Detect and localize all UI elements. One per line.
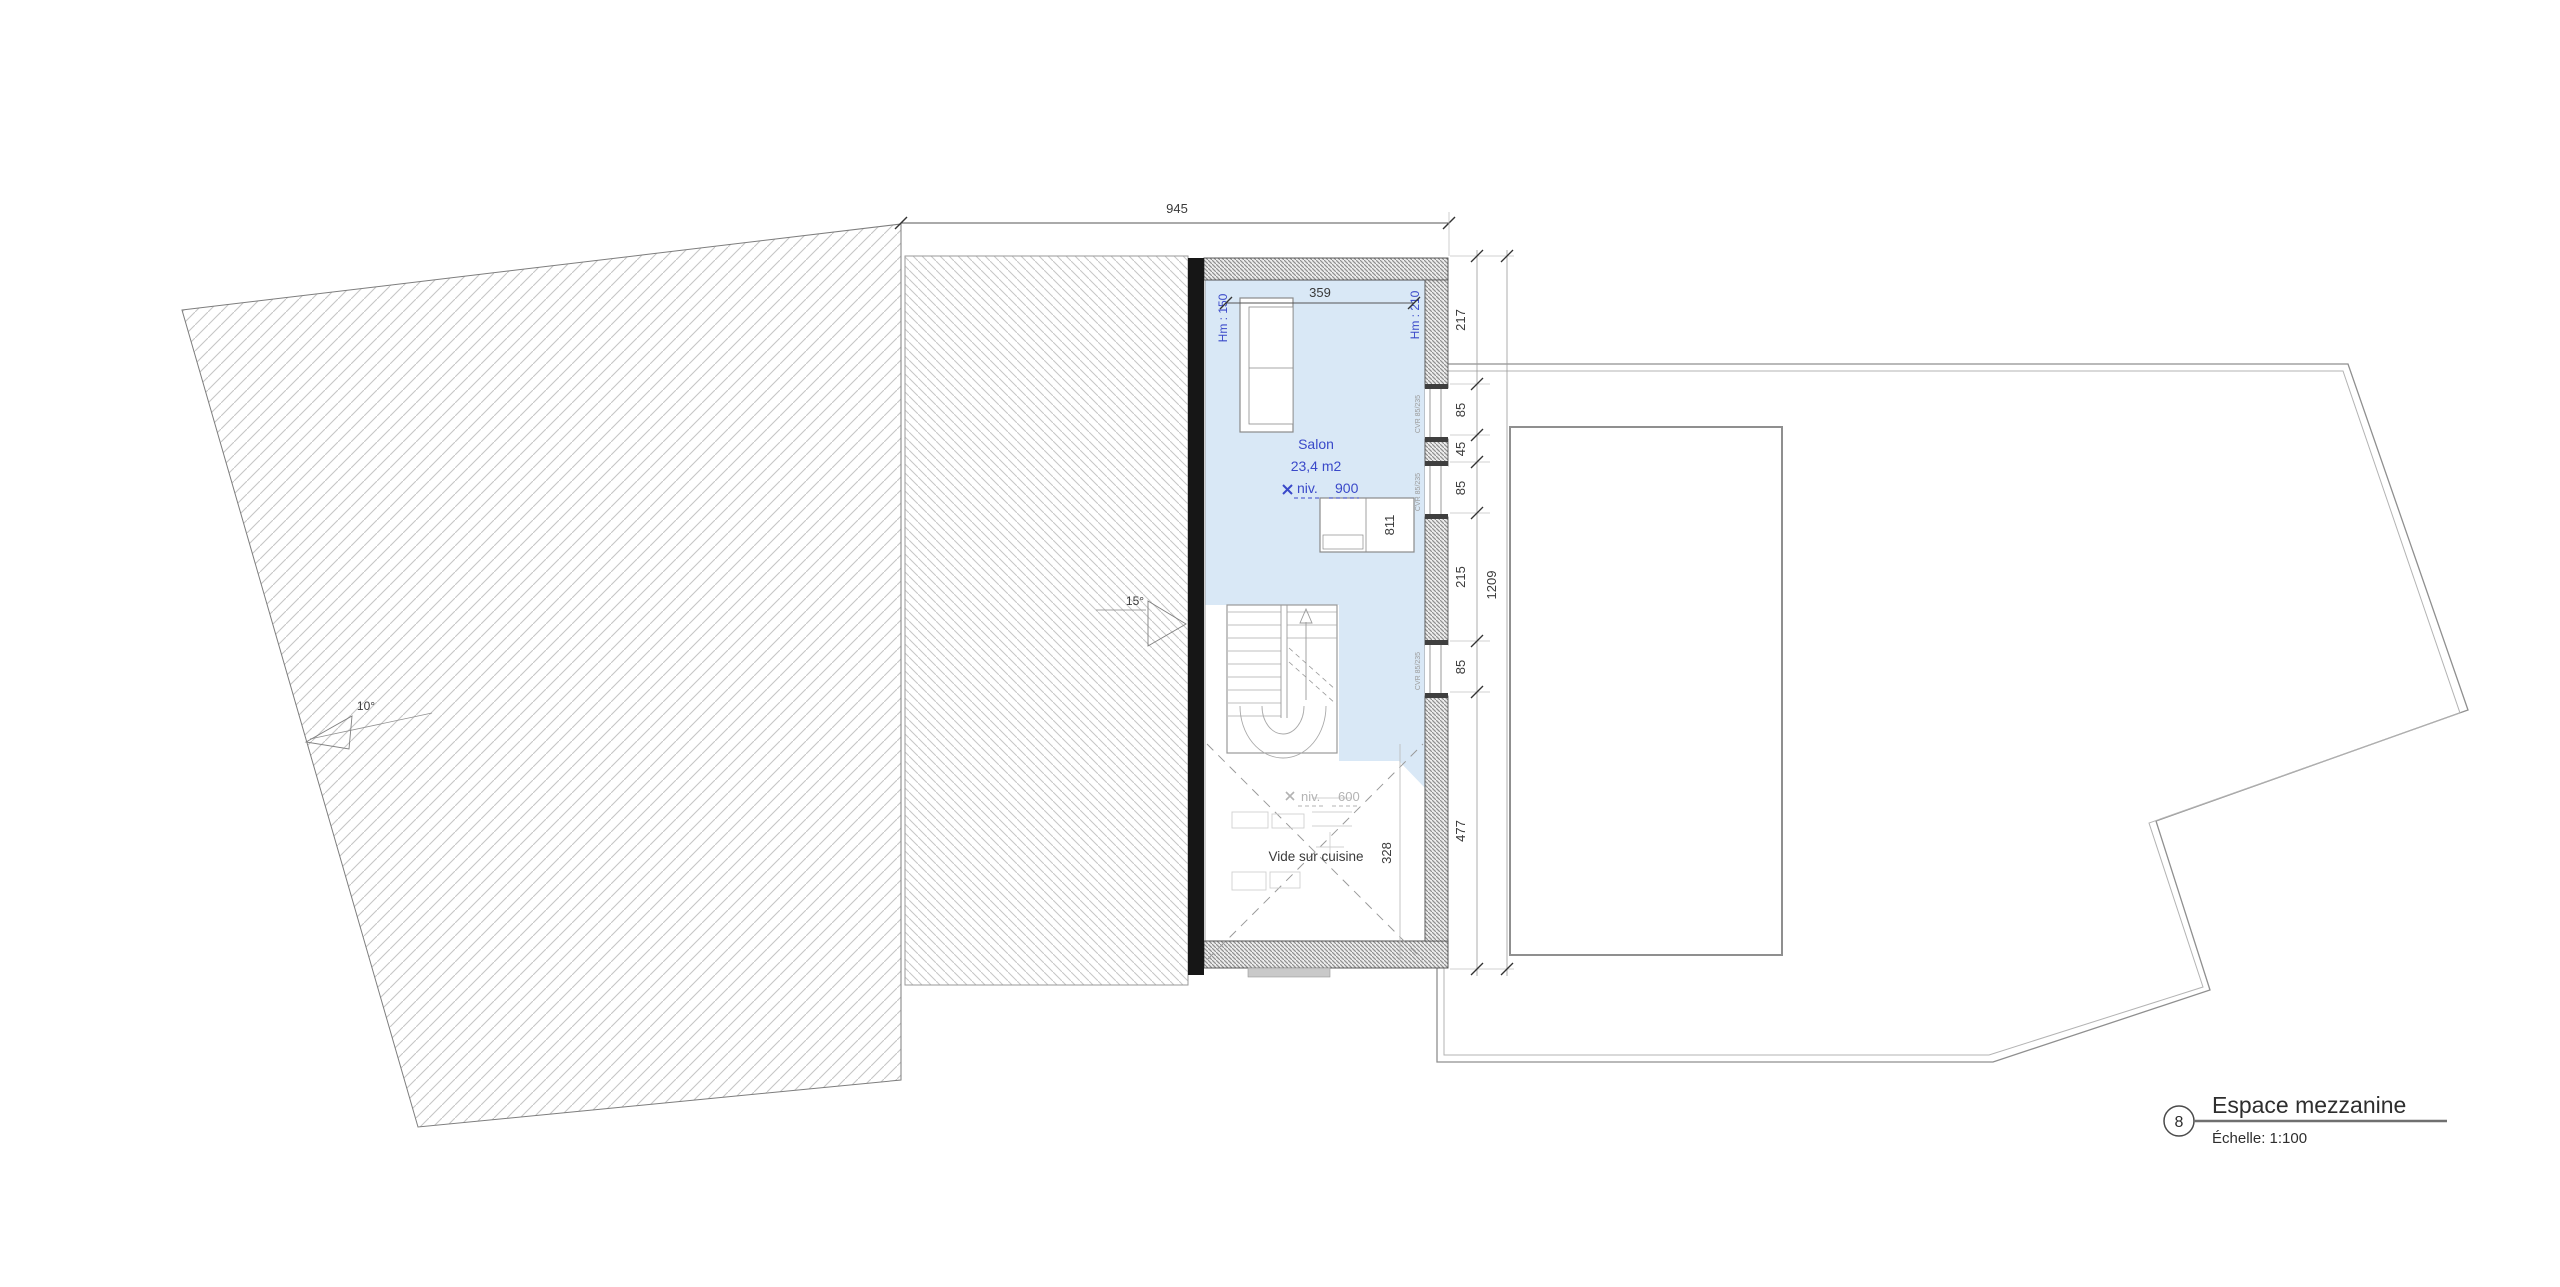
cabinet: 811 <box>1320 498 1414 552</box>
salon-niv-label: niv. <box>1297 480 1318 496</box>
staircase <box>1227 605 1337 758</box>
salon-area: 23,4 m2 <box>1291 458 1342 474</box>
dim-85a: 85 <box>1453 403 1468 417</box>
wall-left-black <box>1188 258 1204 975</box>
slope-mid-label: 15° <box>1126 594 1144 608</box>
cabinet-dim-label: 811 <box>1382 515 1397 536</box>
window-2-label: CVR 85/235 <box>1415 473 1422 511</box>
window-3 <box>1425 640 1448 698</box>
void-niv-label: niv. <box>1301 789 1320 804</box>
ledge-bottom <box>1248 968 1330 977</box>
dim-45: 45 <box>1453 442 1468 456</box>
dim-1209: 1209 <box>1484 571 1499 600</box>
floor-plan-page: CVR 85/235 CVR 85/235 CVR 85/235 811 <box>0 0 2560 1287</box>
wall-bottom <box>1204 941 1448 968</box>
void-niv-value: 600 <box>1338 789 1360 804</box>
dim-salon-359-label: 359 <box>1309 285 1331 300</box>
wall-right-seg3 <box>1425 517 1448 645</box>
dim-217: 217 <box>1453 309 1468 331</box>
sheet-number: 8 <box>2175 1114 2184 1131</box>
window-3-label: CVR 85/235 <box>1415 652 1422 690</box>
dim-477: 477 <box>1453 820 1468 842</box>
salon-name: Salon <box>1298 436 1334 452</box>
dim-85c: 85 <box>1453 660 1468 674</box>
void-label: Vide sur cuisine <box>1268 849 1363 864</box>
wall-top <box>1204 258 1448 280</box>
sheet-title: Espace mezzanine <box>2212 1092 2406 1118</box>
window-1-label: CVR 85/235 <box>1415 395 1422 433</box>
window-2 <box>1425 461 1448 519</box>
wall-right-seg1 <box>1425 280 1448 388</box>
salon-niv-value: 900 <box>1335 480 1359 496</box>
slope-left-label: 10° <box>357 699 375 713</box>
roof-mid-hatched <box>905 256 1188 985</box>
void-width-dim: 328 <box>1379 842 1394 864</box>
sheet-scale: Échelle: 1:100 <box>2212 1130 2307 1147</box>
floor-plan-drawing: CVR 85/235 CVR 85/235 CVR 85/235 811 <box>0 0 2560 1287</box>
dim-top-945-label: 945 <box>1166 201 1188 216</box>
dim-85b: 85 <box>1453 481 1468 495</box>
window-1 <box>1425 384 1448 442</box>
sofa <box>1240 298 1293 432</box>
dim-215: 215 <box>1453 566 1468 588</box>
wall-right-seg4 <box>1425 696 1448 941</box>
